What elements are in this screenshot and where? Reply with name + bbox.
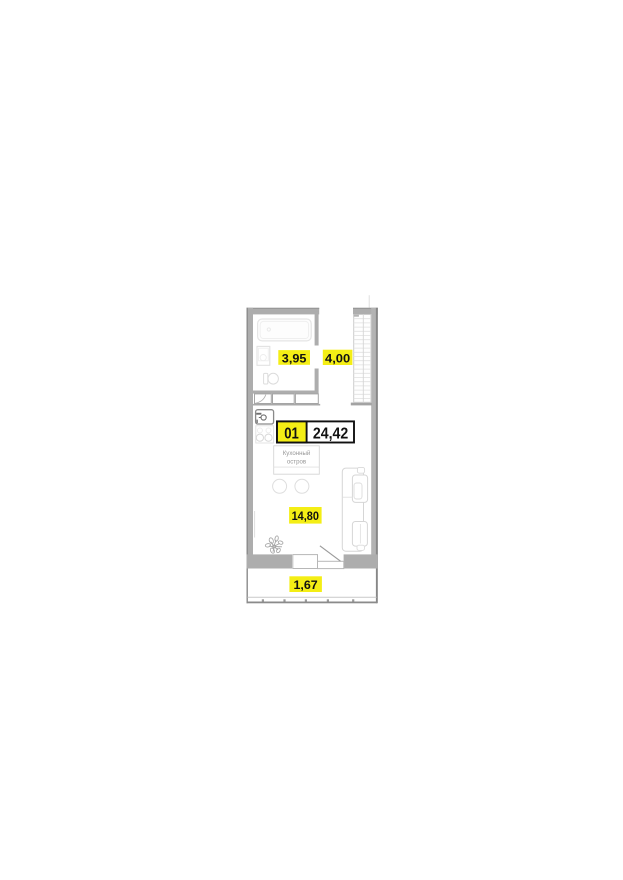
svg-text:остров: остров (287, 459, 306, 466)
svg-text:3,95: 3,95 (282, 351, 307, 365)
svg-text:01: 01 (284, 426, 299, 443)
svg-text:Кухонный: Кухонный (283, 450, 310, 457)
svg-text:14,80: 14,80 (292, 509, 320, 523)
svg-text:24,42: 24,42 (313, 426, 349, 443)
svg-text:1,67: 1,67 (294, 578, 318, 592)
svg-text:4,00: 4,00 (325, 351, 350, 365)
